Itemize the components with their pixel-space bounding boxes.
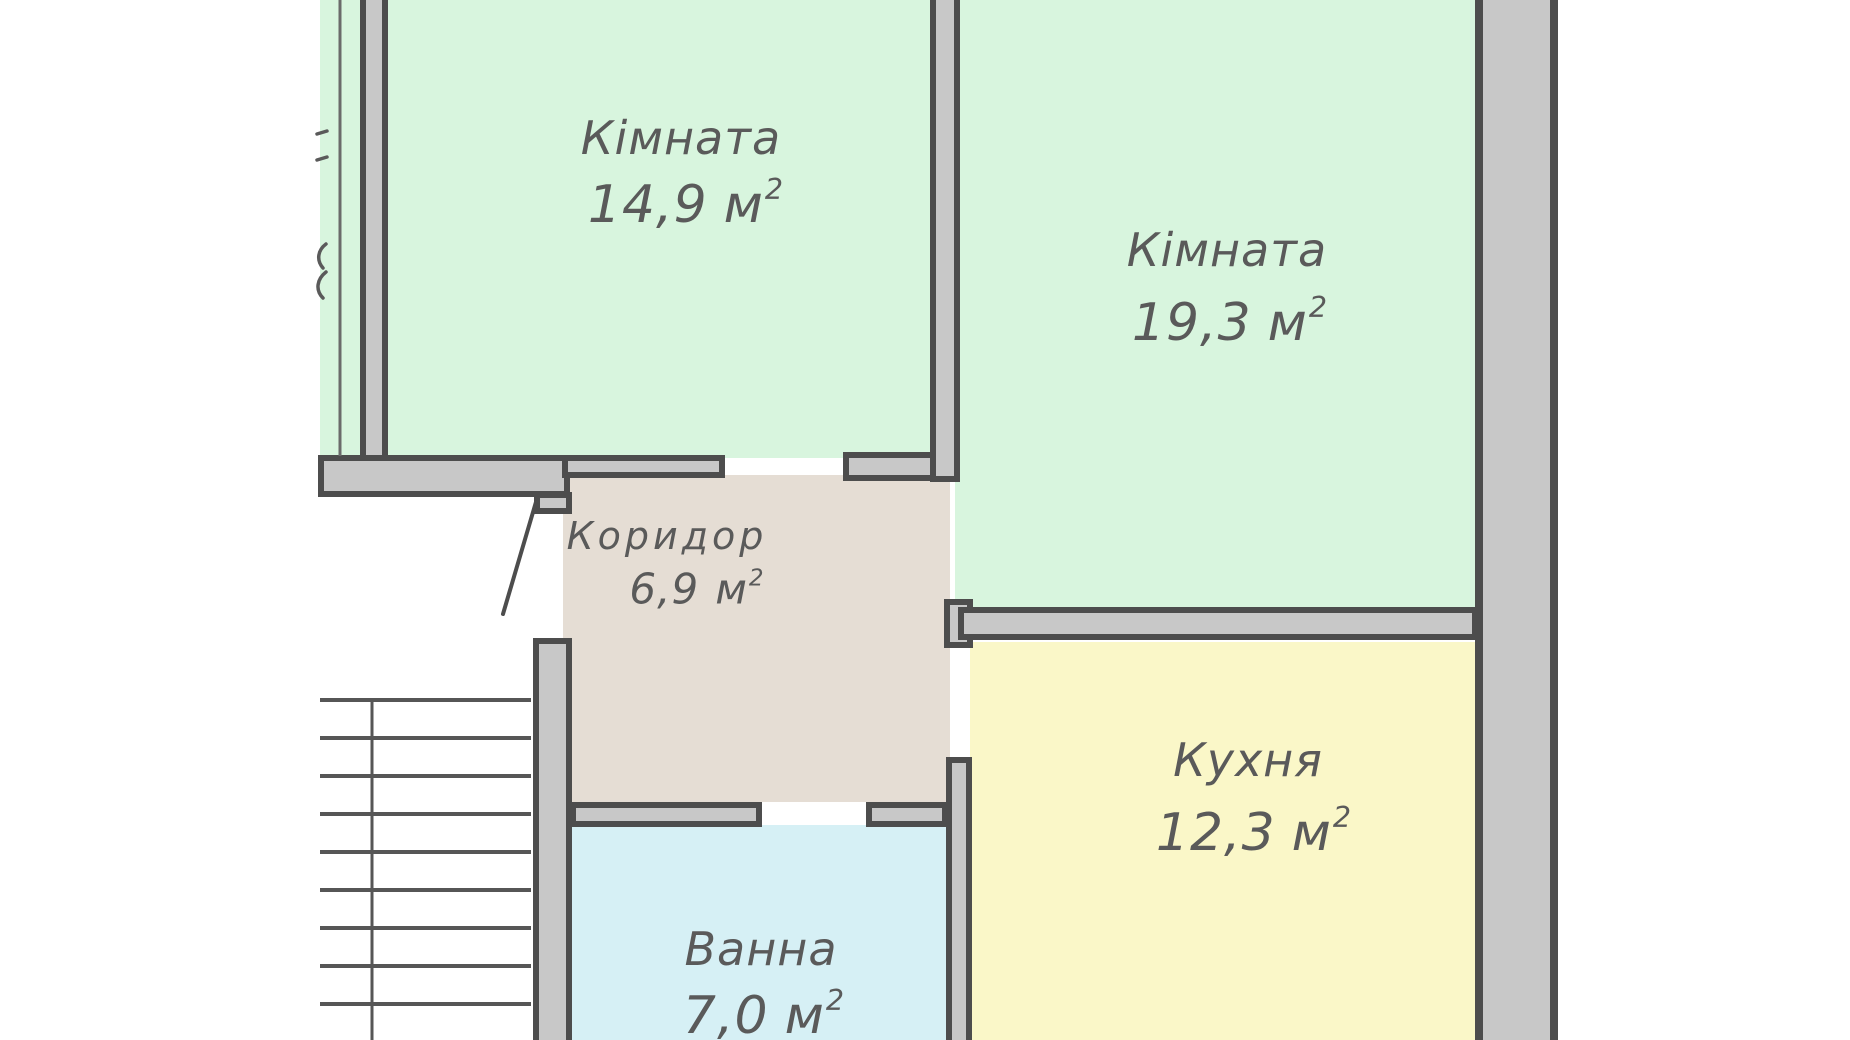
corridor-label: Коридор: [567, 514, 768, 558]
room-2-label: Кімната: [1127, 223, 1327, 277]
bathroom-area: 7,0м2: [683, 986, 845, 1040]
corridor-name: Коридор: [567, 514, 768, 558]
staircase: [320, 700, 531, 1040]
plan-linework: [0, 0, 1850, 1040]
room-1-area: 14,9м2: [588, 175, 784, 235]
door-swing-line: [503, 502, 536, 614]
bathroom-name: Ванна: [684, 922, 837, 976]
kitchen-label: Кухня: [1173, 733, 1323, 787]
floor-plan: Кімната 14,9м2 Кімната 19,3м2 Коридор 6,…: [0, 0, 1850, 1040]
kitchen-area: 12,3м2: [1156, 803, 1352, 863]
room-2-name: Кімната: [1127, 223, 1327, 277]
room-2-area: 19,3м2: [1132, 293, 1328, 353]
corridor-area: 6,9м2: [629, 565, 764, 614]
clipped-label-fragments: [317, 131, 327, 298]
room-1-label: Кімната: [581, 111, 781, 165]
room-1-name: Кімната: [581, 111, 781, 165]
bathroom-label: Ванна: [684, 922, 837, 976]
kitchen-name: Кухня: [1173, 733, 1323, 787]
